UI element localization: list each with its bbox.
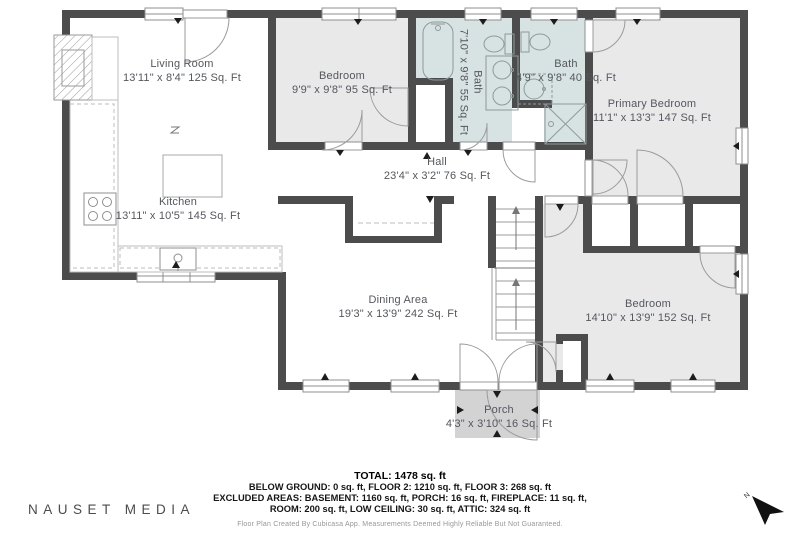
room-dims: 4'3" x 3'10" 16 Sq. Ft [446, 418, 552, 432]
window [616, 8, 660, 20]
room-dims: 9'9" x 9'8" 95 Sq. Ft [292, 84, 392, 98]
door-arc [503, 150, 535, 182]
room-label-porch: Porch 4'3" x 3'10" 16 Sq. Ft [446, 404, 552, 431]
room-name: Kitchen [116, 196, 240, 210]
window [671, 380, 715, 392]
room-name: Primary Bedroom [593, 98, 711, 112]
room-dims: 14'10" x 13'9" 152 Sq. Ft [585, 312, 710, 326]
room-label-bedroom-bottom: Bedroom 14'10" x 13'9" 152 Sq. Ft [585, 298, 710, 325]
window [465, 8, 501, 20]
floorplan-page: N Living Room 13'11" x 8'4" 125 Sq. Ft B… [0, 0, 800, 534]
room-label-hall: Hall 23'4" x 3'2" 76 Sq. Ft [384, 156, 490, 183]
room-name: Dining Area [339, 294, 458, 308]
window [322, 8, 396, 20]
room-name: Porch [446, 404, 552, 418]
room-name: Living Room [123, 58, 241, 72]
room-label-kitchen: Kitchen 13'11" x 10'5" 145 Sq. Ft [116, 196, 240, 223]
counter [70, 100, 118, 272]
room-name: Bedroom [585, 298, 710, 312]
kitchen-fixtures [70, 100, 282, 272]
room-dims: 4'9" x 9'8" 40 Sq. Ft [516, 72, 616, 86]
stairs-icon [492, 206, 535, 340]
room-dims: 13'11" x 10'5" 145 Sq. Ft [116, 210, 240, 224]
door-arc [460, 344, 498, 382]
room-label-dining-area: Dining Area 19'3" x 13'9" 242 Sq. Ft [339, 294, 458, 321]
kitchen-island [163, 155, 222, 197]
brand-logo: NAUSET MEDIA [28, 502, 195, 517]
window [303, 380, 349, 392]
room-name: Bedroom [292, 70, 392, 84]
stove-icon [84, 193, 116, 225]
floorplan-canvas: N [0, 0, 800, 534]
room-dims: 11'1" x 13'3" 147 Sq. Ft [593, 112, 711, 126]
disclaimer: Floor Plan Created By Cubicasa App. Meas… [0, 521, 800, 528]
room-dims: 7'10" x 9'8" 55 Sq. Ft [457, 29, 471, 135]
room-name: Bath [516, 58, 616, 72]
room-dims: 23'4" x 3'2" 76 Sq. Ft [384, 170, 490, 184]
area-summary: TOTAL: 1478 sq. ft BELOW GROUND: 0 sq. f… [0, 470, 800, 528]
room-name: Bath [470, 29, 484, 135]
room-label-bedroom-top: Bedroom 9'9" x 9'8" 95 Sq. Ft [292, 70, 392, 97]
room-label-primary-bedroom: Primary Bedroom 11'1" x 13'3" 147 Sq. Ft [593, 98, 711, 125]
fireplace-icon [54, 35, 118, 100]
room-name: Hall [384, 156, 490, 170]
total-area: TOTAL: 1478 sq. ft [0, 470, 800, 482]
ceiling-mark [171, 127, 179, 133]
window [391, 380, 439, 392]
door-arc [185, 18, 229, 62]
room-label-bath-main: Bath 7'10" x 9'8" 55 Sq. Ft [457, 29, 484, 135]
window [586, 380, 634, 392]
room-dims: 19'3" x 13'9" 242 Sq. Ft [339, 308, 458, 322]
room-label-bath-small: Bath 4'9" x 9'8" 40 Sq. Ft [516, 58, 616, 85]
door-arc [499, 344, 537, 382]
summary-line: BELOW GROUND: 0 sq. ft, FLOOR 2: 1210 sq… [0, 482, 800, 493]
room-dims: 13'11" x 8'4" 125 Sq. Ft [123, 72, 241, 86]
room-label-living-room: Living Room 13'11" x 8'4" 125 Sq. Ft [123, 58, 241, 85]
window [531, 8, 577, 20]
